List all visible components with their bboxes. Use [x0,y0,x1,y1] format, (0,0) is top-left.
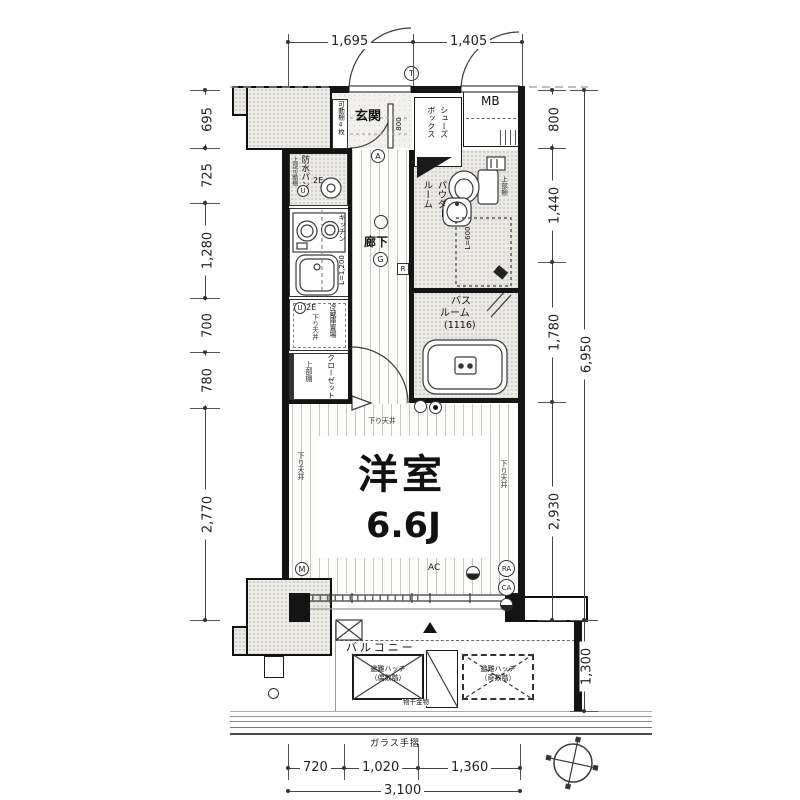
dim-dot [550,400,554,404]
bath-size-label: (1116) [444,321,476,332]
dim-dot [550,618,554,622]
marker-ca-text: CA [502,584,512,592]
compass-icon [541,732,603,794]
lower-vent-circle [500,598,513,611]
dim-dot [203,146,207,150]
floor-plan: 玄関 可動棚4枚 シューズ ボックス MB 防水パン 上部可動棚 2E U キッ… [0,0,800,800]
dim-left-6: 2,770 [201,490,216,540]
basin-length-label: L=600 [464,216,472,260]
compass-mark [576,737,581,742]
down-ceiling-left: 下り天井 [297,452,305,496]
dim-dot [520,40,524,44]
bath-utility-circle-dark [429,401,442,414]
hatch-even-line1: 避難ハッチ [371,665,406,673]
entrance-door-slab [349,86,411,92]
dim-dot [550,146,554,150]
movable-shelves-label: 可動棚4枚 [336,101,343,149]
monohoshi-label: 物干金物 [402,699,430,706]
wall [348,154,352,404]
upper-shelf-powder: 上部棚 [499,176,506,204]
hall-door-slab [388,104,393,148]
dim-dot [286,40,290,44]
marker-a: A [371,149,385,163]
dim-dot [203,406,207,410]
mb-label: MB [481,95,500,109]
dim-tick [288,744,289,780]
dim-right-4: 2,930 [548,487,563,537]
marker-g-text: G [377,255,383,264]
main-room-size-label: 6.6J [366,506,441,546]
bath-label-line2: ルーム [440,308,470,320]
compass-mark [546,755,551,760]
hatch-even-label: 避難ハッチ（偶数階） [354,665,422,683]
corridor-label: 廊下 [364,236,388,250]
marker-t: T [404,66,419,81]
mb-door-slab [461,86,519,92]
marker-a-text: A [375,152,380,161]
dim-right-1: 800 [548,95,563,145]
glass-rail-label: ガラス手摺 [370,739,420,749]
wall [332,86,349,93]
dim-dot [203,350,207,354]
wall [409,150,414,403]
dim-dot [286,766,290,770]
dim-dot [203,296,207,300]
dim-dot [203,88,207,92]
bathtub-faucet-deck [455,357,476,374]
wall [411,86,461,93]
dim-bottom-2: 1,020 [359,760,402,775]
shoes-box-line2: ボックス [427,106,436,138]
dim-dot [286,789,290,793]
hatch-odd-label: 避難ハッチ（奇数階） [464,665,532,683]
corridor-light-circle [374,215,388,229]
marker-ra: RA [498,560,515,577]
dim-tick [418,744,419,780]
dim-dot [416,766,420,770]
shoes-box-label: シューズ ボックス [424,106,450,162]
closet-label: クローゼット [326,354,335,400]
fan-icon [493,265,508,280]
powder-line2: ルーム [421,180,432,209]
marker-ca: CA [498,579,515,596]
dark-dot [433,405,438,410]
wall-right [518,86,525,598]
dim-left-4: 700 [201,301,216,351]
kitchen-length-label: L=1,200 [338,248,346,292]
ac-label: AC [428,563,440,573]
upper-movable-shelf-label: 上部可動棚 [290,156,297,204]
dim-right-2: 1,440 [548,181,563,231]
dim-dot [582,709,586,713]
marker-ra-text: RA [502,565,511,573]
dim-dot [582,618,586,622]
door-width-label: 800 [395,102,403,146]
marker-g: G [373,252,388,267]
dim-left-5: 780 [201,356,216,406]
vent-circle [466,566,480,580]
marker-u-fridge: U [294,302,306,314]
dim-left-2: 725 [201,151,216,201]
dim-dot [582,88,586,92]
dim-dot [203,201,207,205]
dim-tick [520,744,521,780]
down-ceiling-right: 下り天井 [500,460,508,504]
faucet-knob [468,364,472,368]
compass-mark [566,784,571,789]
wall [414,288,518,293]
powder-line1: パウダー [436,180,447,218]
dim-bottom-1: 720 [300,760,331,775]
marker-u-pan-text: U [300,187,305,195]
genkan-label: 玄関 [355,110,381,125]
balcony-label: バルコニー [346,642,416,655]
wall-left [282,148,289,578]
dim-top-1: 1,695 [328,34,371,49]
dim-right-3: 1,780 [548,308,563,358]
balcony-door-marker [423,622,437,633]
dim-dot [550,88,554,92]
main-room-label: 洋室 [358,452,446,498]
room-door-leaf [352,396,371,410]
dim-left-1: 695 [201,95,216,145]
dim-dot [342,766,346,770]
compass-mark [593,765,598,770]
upper-shelf-closet: 上部棚 [305,361,313,391]
dim-left-3: 1,280 [201,226,216,276]
powder-room-label: パウダー ルーム [419,180,448,270]
dim-dot [518,789,522,793]
bath-label-line1: バス [451,296,471,308]
room-door-arc [352,347,408,403]
vent-icon [487,157,505,170]
bath-door-line [491,295,511,317]
hatch-even-line2: （偶数階） [371,674,406,682]
wall [289,400,352,404]
fridge-label: 冷蔵庫置場 [329,303,337,349]
marker-m-text: M [299,565,306,574]
marker-m: M [295,562,309,576]
dim-right-total: 6,950 [580,330,595,380]
marker-r-text: R [401,265,406,273]
fridge-2e-label: 2E [306,303,316,312]
hatch-odd-line1: 避難ハッチ [481,665,516,673]
dim-dot [550,260,554,264]
dim-tick [344,744,345,780]
hatch-odd-line2: （奇数階） [481,674,516,682]
wall [289,593,310,622]
washer-drain [321,178,341,198]
shoes-box-line1: シューズ [440,106,449,138]
dim-balcony-depth: 1,300 [580,642,595,692]
washbasin-faucet [456,203,459,206]
faucet-knob [459,364,463,368]
dim-dot [518,766,522,770]
marker-r: R [397,263,409,275]
dim-top-2: 1,405 [447,34,490,49]
dim-dot [203,618,207,622]
marker-u-fridge-text: U [297,304,302,312]
dim-dot [411,40,415,44]
marker-u-pan: U [297,185,309,197]
pan-2e-label: 2E [313,176,323,185]
bath-utility-circle [414,400,427,413]
dim-bottom-3: 1,360 [448,760,491,775]
divider-diagonal [426,650,458,708]
down-ceiling-top: 下り天井 [368,417,396,425]
dim-bottom-total: 3,100 [381,783,424,798]
down-ceiling-fridge: 下り天井 [310,314,317,350]
toilet-tank [478,170,498,204]
